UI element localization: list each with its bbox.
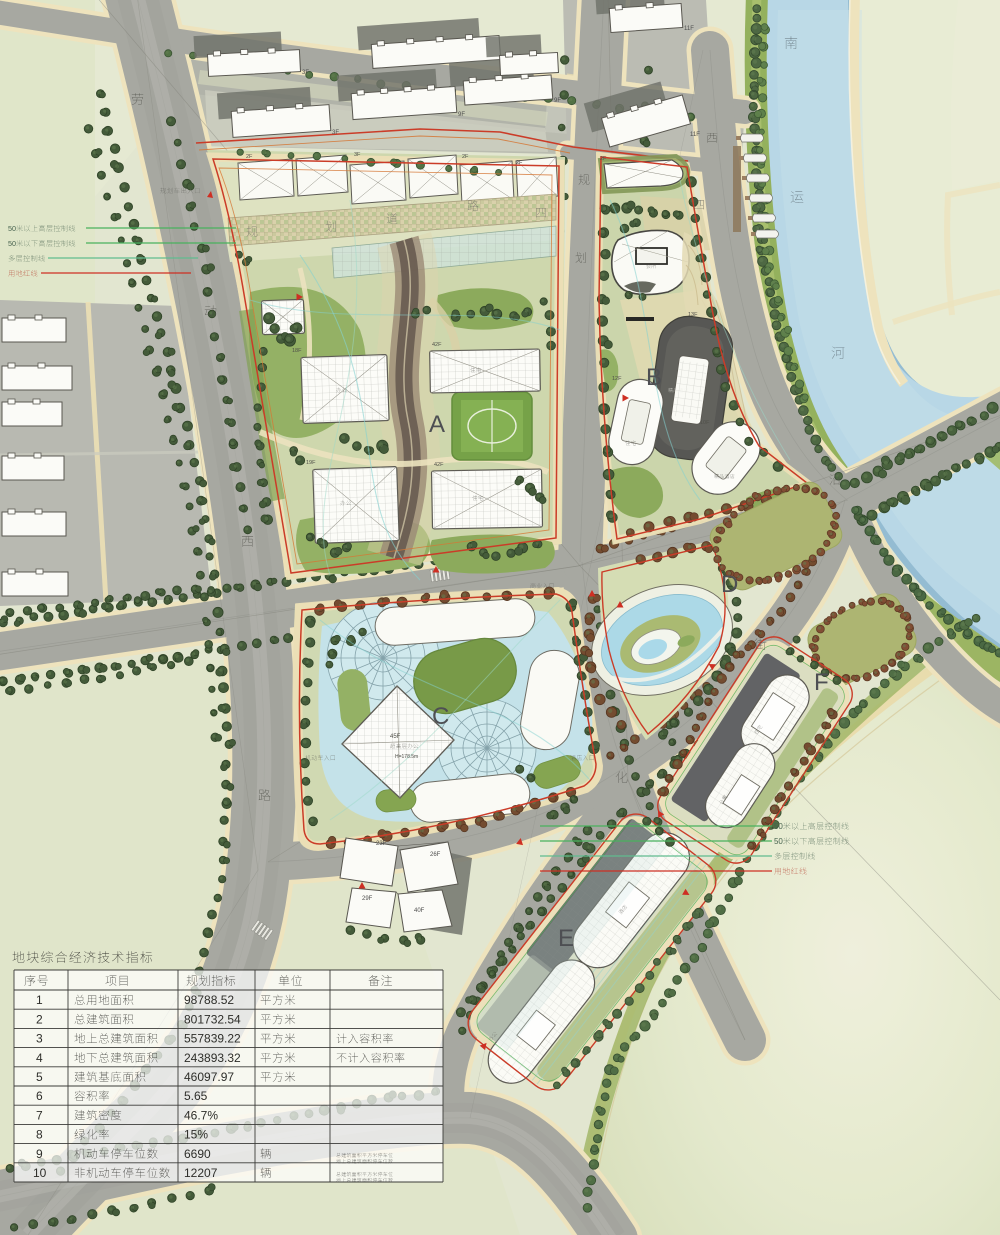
svg-text:6690: 6690	[184, 1147, 211, 1161]
svg-text:4: 4	[36, 1051, 43, 1065]
svg-text:9: 9	[36, 1147, 43, 1161]
svg-text:7: 7	[36, 1108, 43, 1122]
svg-text:5.65: 5.65	[184, 1089, 208, 1103]
svg-text:46097.97: 46097.97	[184, 1070, 234, 1084]
svg-text:3: 3	[36, 1032, 43, 1046]
svg-text:1: 1	[36, 993, 43, 1007]
svg-text:5: 5	[36, 1070, 43, 1084]
svg-text:98788.52: 98788.52	[184, 993, 234, 1007]
svg-text:2: 2	[36, 1012, 43, 1026]
svg-text:8: 8	[36, 1128, 43, 1142]
svg-text:15%: 15%	[184, 1128, 208, 1142]
svg-text:243893.32: 243893.32	[184, 1051, 241, 1065]
svg-text:46.7%: 46.7%	[184, 1108, 218, 1122]
svg-text:557839.22: 557839.22	[184, 1032, 241, 1046]
svg-text:801732.54: 801732.54	[184, 1012, 241, 1026]
svg-text:12207: 12207	[184, 1166, 218, 1180]
svg-text:10: 10	[33, 1166, 47, 1180]
svg-text:6: 6	[36, 1089, 43, 1103]
